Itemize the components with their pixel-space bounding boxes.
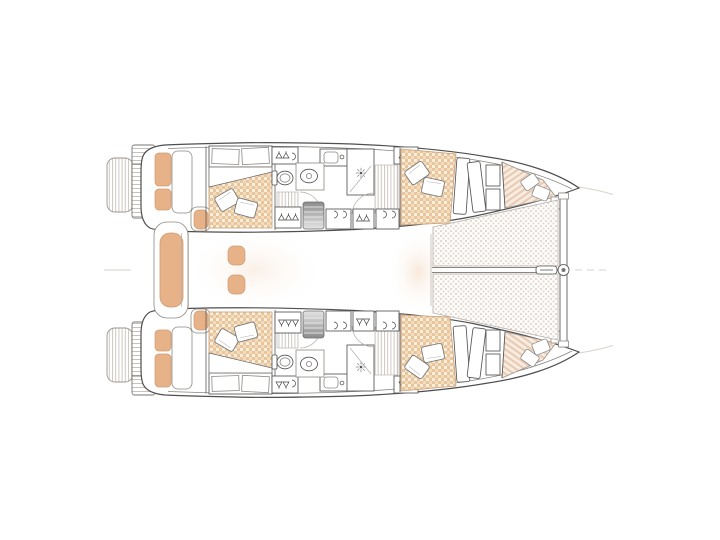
saloon-wash (185, 228, 325, 312)
saloon-corner-seat (228, 246, 245, 265)
saloon-corner-seat (228, 275, 245, 294)
cockpit-lounge-cushion (160, 233, 183, 307)
floor-plan-drawing (0, 0, 720, 540)
catamaran-floor-plan (0, 0, 720, 540)
forestay-pin (562, 268, 566, 272)
